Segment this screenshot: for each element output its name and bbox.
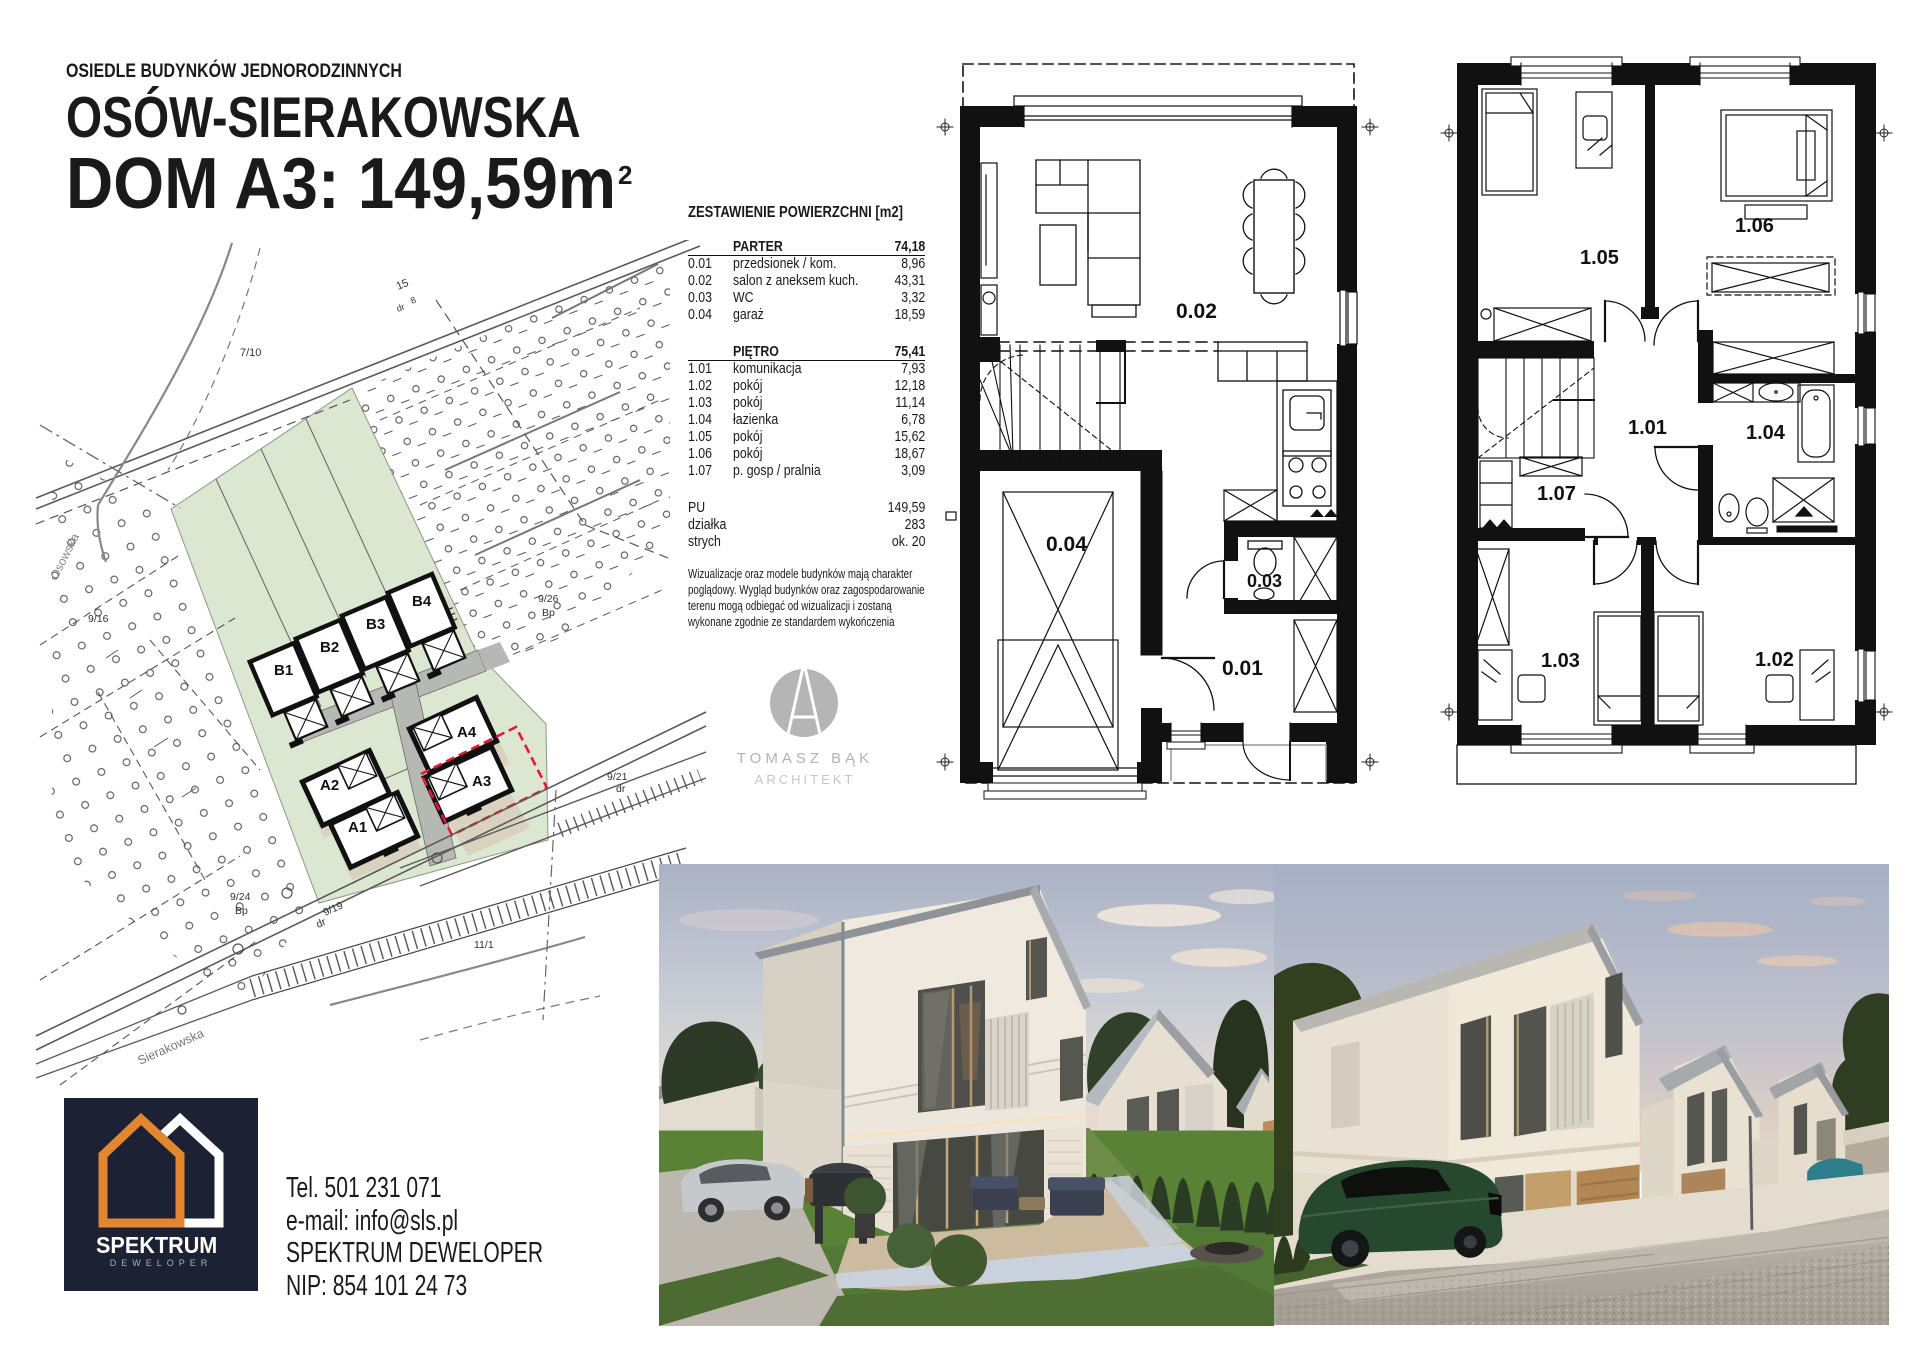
svg-text:8: 8 xyxy=(409,295,417,306)
svg-text:Sierakowska: Sierakowska xyxy=(136,1026,206,1068)
svg-text:0.04: 0.04 xyxy=(1046,533,1087,556)
svg-text:dr: dr xyxy=(616,783,626,795)
svg-text:9/16: 9/16 xyxy=(88,613,109,625)
svg-text:9/21: 9/21 xyxy=(607,771,628,783)
svg-text:1.05: 1.05 xyxy=(1580,247,1619,269)
svg-text:B3: B3 xyxy=(366,616,385,633)
svg-text:A3: A3 xyxy=(472,773,491,790)
svg-text:B1: B1 xyxy=(274,662,293,679)
svg-text:Bp: Bp xyxy=(235,905,248,917)
svg-text:9/26: 9/26 xyxy=(538,593,559,605)
svg-text:1.02: 1.02 xyxy=(1755,649,1794,671)
svg-text:0.03: 0.03 xyxy=(1247,571,1282,591)
svg-text:7/10: 7/10 xyxy=(240,347,261,359)
svg-text:0.01: 0.01 xyxy=(1222,657,1263,680)
svg-text:1.04: 1.04 xyxy=(1746,422,1786,444)
svg-text:1.03: 1.03 xyxy=(1541,650,1580,672)
svg-text:9/24: 9/24 xyxy=(230,891,251,903)
svg-text:0.02: 0.02 xyxy=(1176,300,1217,323)
svg-text:dr: dr xyxy=(395,302,406,314)
svg-text:11/1: 11/1 xyxy=(474,939,494,951)
svg-text:1.07: 1.07 xyxy=(1537,483,1576,505)
svg-text:B4: B4 xyxy=(412,593,432,610)
svg-text:A1: A1 xyxy=(348,819,367,836)
svg-text:A2: A2 xyxy=(320,777,339,794)
svg-text:1.06: 1.06 xyxy=(1735,215,1774,237)
svg-text:A4: A4 xyxy=(457,724,477,741)
svg-text:B2: B2 xyxy=(320,639,339,656)
svg-text:Bp: Bp xyxy=(542,607,555,619)
svg-text:15: 15 xyxy=(395,277,411,293)
svg-text:1.01: 1.01 xyxy=(1628,417,1667,439)
